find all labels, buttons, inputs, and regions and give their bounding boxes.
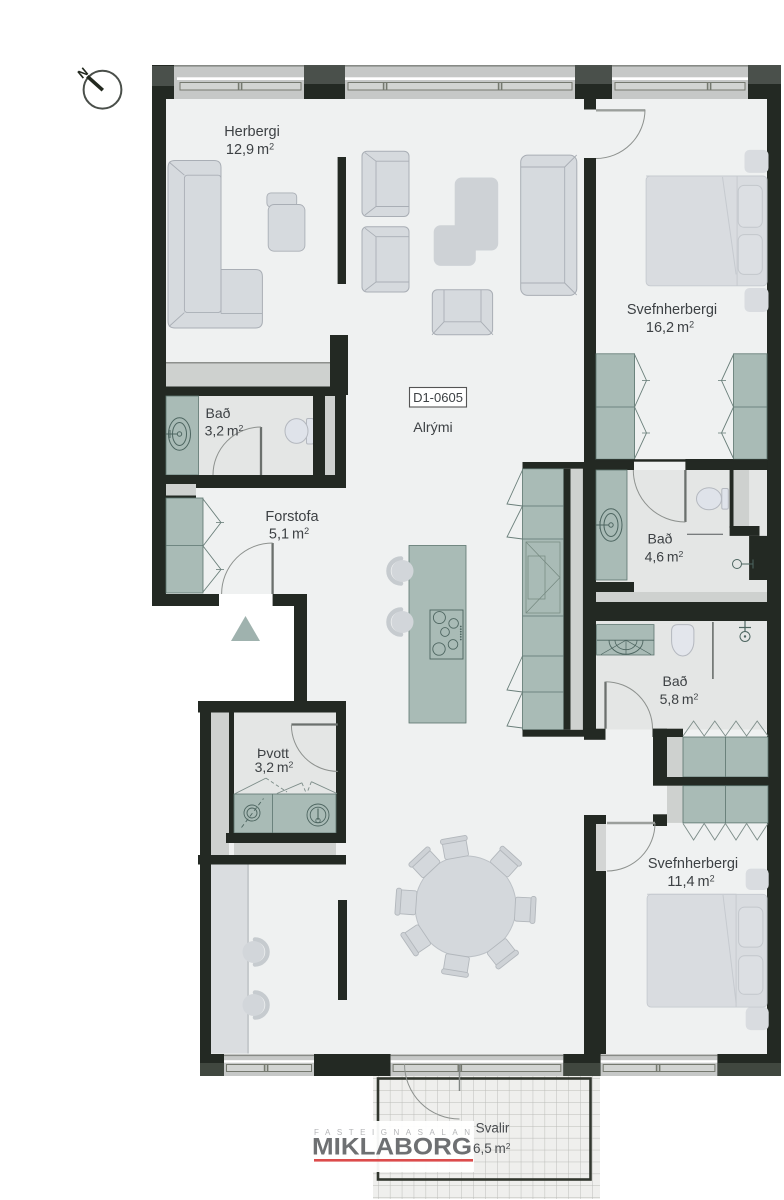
svg-text:4,6 m2: 4,6 m2 [645,549,684,565]
svg-text:5,8 m2: 5,8 m2 [660,691,699,707]
svg-text:Bað: Bað [206,405,231,421]
svg-text:D1-0605: D1-0605 [413,390,463,405]
svg-text:Bað: Bað [648,531,673,547]
svg-text:Svefnherbergi: Svefnherbergi [648,856,738,872]
svg-text:Bað: Bað [663,673,688,689]
svg-text:3,2 m2: 3,2 m2 [255,759,294,775]
svg-text:3,2 m2: 3,2 m2 [205,423,244,439]
svg-text:5,1 m2: 5,1 m2 [269,526,309,543]
svg-text:Herbergi: Herbergi [224,124,280,140]
svg-text:6,5 m2: 6,5 m2 [473,1141,511,1156]
svg-text:12,9 m2: 12,9 m2 [226,142,274,159]
svg-text:Svefnherbergi: Svefnherbergi [627,302,717,318]
svg-text:Alrými: Alrými [413,420,452,436]
svg-text:16,2 m2: 16,2 m2 [646,320,694,337]
svg-text:MIKLABORG: MIKLABORG [312,1134,472,1161]
svg-text:Svalir: Svalir [476,1121,510,1136]
svg-text:Forstofa: Forstofa [265,509,319,525]
svg-text:11,4 m2: 11,4 m2 [667,874,714,891]
